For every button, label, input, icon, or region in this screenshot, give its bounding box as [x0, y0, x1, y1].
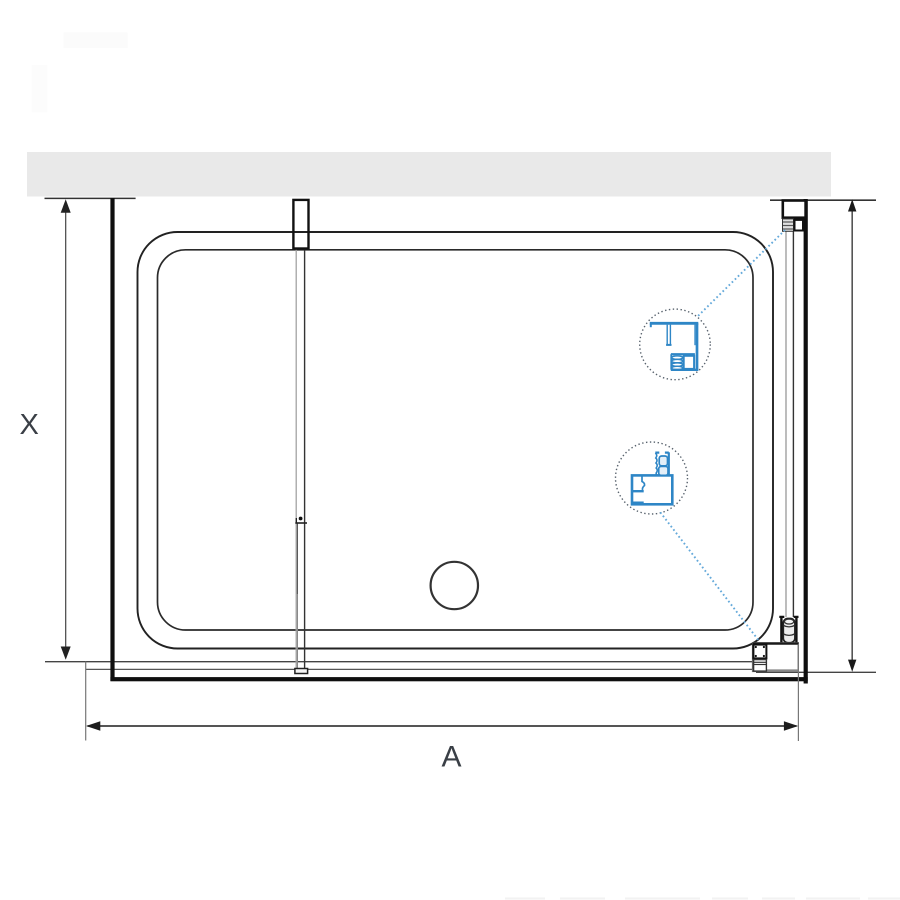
svg-text:X: X: [20, 409, 39, 441]
svg-text:A: A: [441, 740, 461, 773]
